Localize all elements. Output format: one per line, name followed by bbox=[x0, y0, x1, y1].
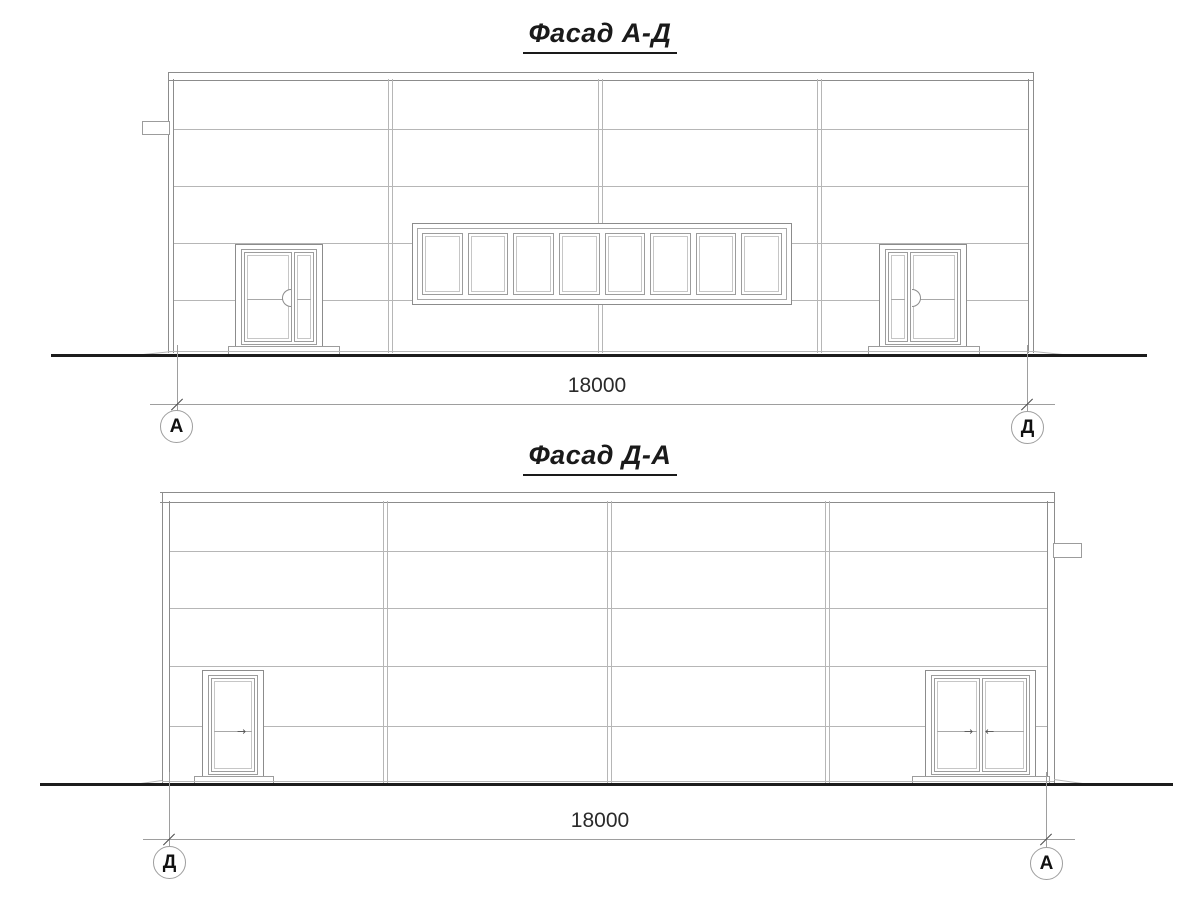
wall-edge-right-inner bbox=[1047, 501, 1048, 783]
wall-protrusion bbox=[1053, 543, 1082, 558]
column-line bbox=[387, 501, 388, 783]
column-line bbox=[611, 501, 612, 783]
double-door-right: → ← bbox=[925, 670, 1036, 778]
dimension-value: 18000 bbox=[540, 809, 660, 833]
axis-label: Д bbox=[163, 852, 177, 874]
panel-joint-line bbox=[170, 551, 1047, 552]
panel-joint-line bbox=[170, 726, 1047, 727]
door-handle-arrow: → bbox=[964, 726, 973, 737]
extension-line-left bbox=[169, 772, 170, 847]
column-line bbox=[829, 501, 830, 783]
architectural-drawing: Фасад А-Д bbox=[0, 0, 1200, 900]
axis-label: А bbox=[1040, 853, 1054, 875]
building-base-line bbox=[162, 781, 1054, 782]
column-line bbox=[825, 501, 826, 783]
dimension-line bbox=[143, 839, 1075, 840]
extension-line-right bbox=[1046, 772, 1047, 847]
wall-edge-left-outer bbox=[162, 492, 163, 783]
single-door-left: → bbox=[202, 670, 264, 778]
facade-title-row: Фасад Д-А bbox=[0, 440, 1200, 476]
door-frame bbox=[931, 675, 1030, 775]
door-handle-arrow: ← bbox=[985, 726, 994, 737]
door-leaf-panel bbox=[214, 681, 252, 769]
axis-marker-right: А bbox=[1030, 847, 1063, 880]
wall-edge-right-outer bbox=[1054, 492, 1055, 783]
column-line bbox=[383, 501, 384, 783]
door-mid-rail bbox=[214, 731, 252, 732]
panel-joint-line bbox=[170, 608, 1047, 609]
facade-elevation-d-a: Фасад Д-А → bbox=[0, 0, 1200, 900]
door-handle-arrow: → bbox=[237, 726, 246, 737]
wall-edge-left-inner bbox=[169, 501, 170, 783]
column-line bbox=[607, 501, 608, 783]
ground-line bbox=[40, 783, 1173, 786]
facade-title: Фасад Д-А bbox=[523, 440, 678, 476]
panel-joint-line bbox=[170, 666, 1047, 667]
door-leaf bbox=[211, 678, 255, 772]
axis-marker-left: Д bbox=[153, 846, 186, 879]
door-frame bbox=[208, 675, 258, 775]
